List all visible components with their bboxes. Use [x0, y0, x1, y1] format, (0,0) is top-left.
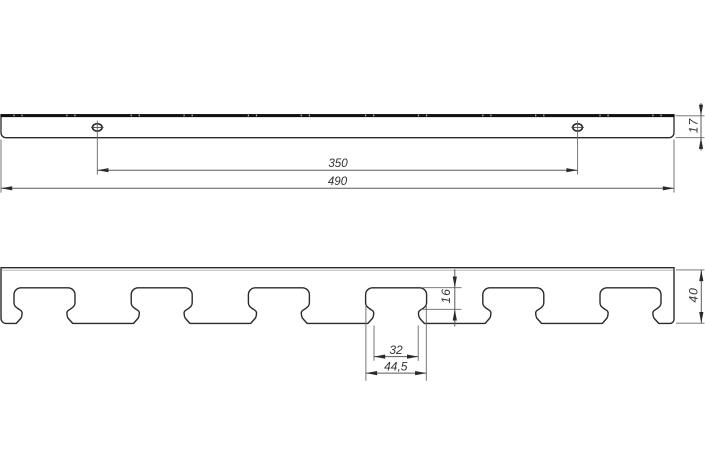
svg-text:44,5: 44,5 [384, 360, 408, 374]
svg-text:350: 350 [328, 157, 348, 170]
svg-text:16: 16 [439, 288, 453, 304]
svg-text:490: 490 [328, 175, 348, 188]
svg-text:32: 32 [389, 343, 403, 357]
svg-text:40: 40 [687, 287, 701, 303]
svg-text:17: 17 [687, 118, 701, 134]
